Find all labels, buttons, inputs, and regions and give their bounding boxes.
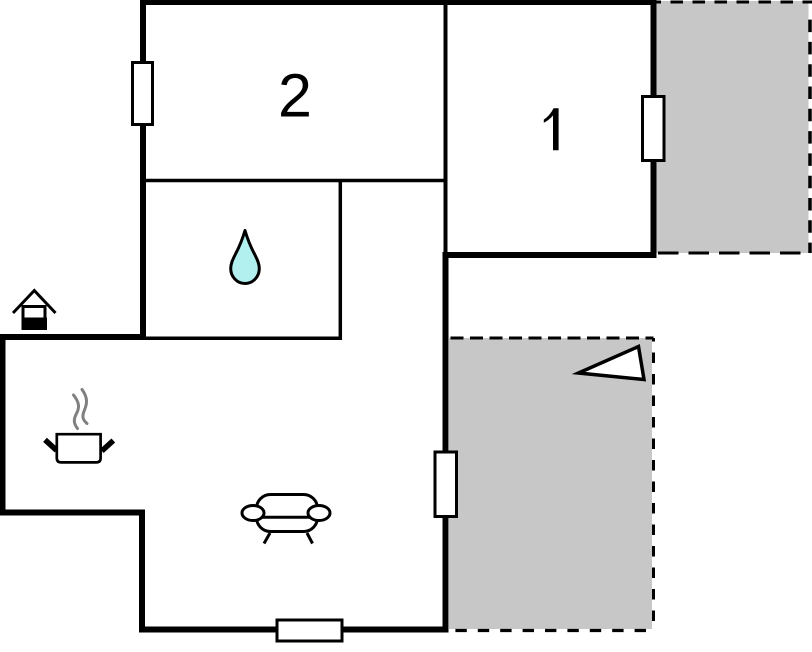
svg-text:2: 2 <box>278 62 312 130</box>
